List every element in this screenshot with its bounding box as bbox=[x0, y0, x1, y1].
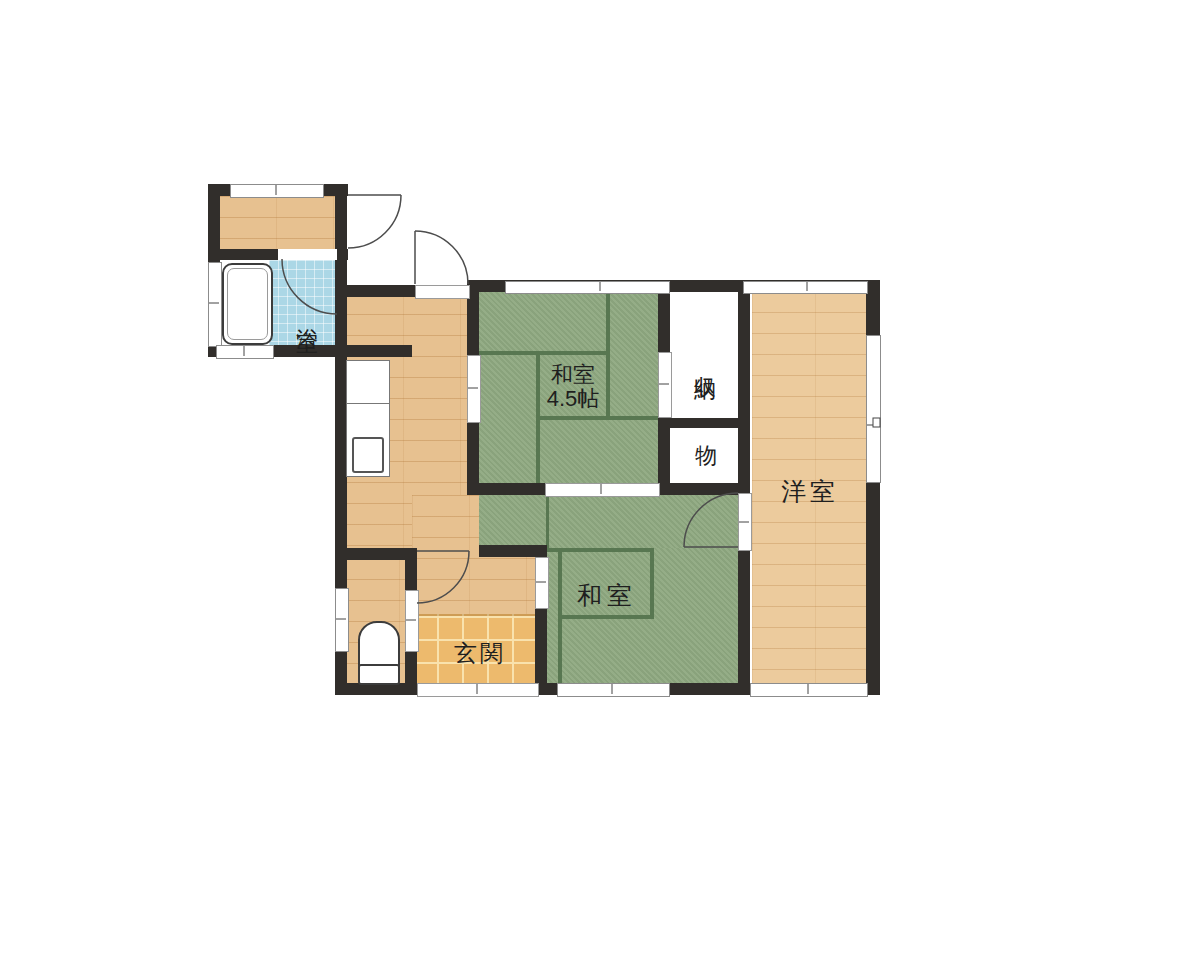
wall bbox=[535, 607, 547, 695]
wall bbox=[738, 549, 750, 695]
japanese-room-45-label-line1: 和室 bbox=[531, 363, 615, 387]
counter-divider bbox=[347, 403, 389, 404]
window bbox=[208, 262, 222, 347]
door-sill bbox=[415, 285, 470, 299]
japanese-room-label: 和室 bbox=[563, 579, 651, 612]
entrance-sliding-door bbox=[417, 683, 539, 697]
window bbox=[743, 281, 868, 294]
utility-room-floor bbox=[219, 196, 337, 249]
bathroom-doorway bbox=[278, 249, 337, 260]
bathtub bbox=[222, 263, 273, 345]
japanese-room-floor bbox=[479, 495, 738, 548]
kitchen-counter bbox=[346, 360, 390, 477]
wall bbox=[479, 545, 547, 557]
wall bbox=[208, 249, 278, 260]
window bbox=[335, 588, 349, 652]
western-room-label: 洋室 bbox=[768, 475, 852, 508]
window bbox=[230, 184, 324, 198]
storage-label: 収納 bbox=[692, 333, 720, 389]
toilet-tank bbox=[358, 664, 400, 685]
japanese-room-45-label: 和室 4.5帖 bbox=[531, 363, 615, 411]
window bbox=[866, 335, 881, 483]
window bbox=[216, 345, 274, 359]
wall bbox=[738, 280, 750, 495]
floor-plan: 浴室 和室 4.5帖 収納 物 洋室 和室 玄関 bbox=[0, 0, 1200, 960]
door-arc-landing bbox=[415, 231, 468, 284]
sliding-door bbox=[658, 352, 672, 418]
wall bbox=[335, 285, 415, 297]
kitchen-sink bbox=[352, 437, 384, 473]
window bbox=[557, 683, 670, 697]
window bbox=[505, 281, 670, 294]
closet-label: 物 bbox=[692, 441, 720, 471]
toilet-doorway bbox=[405, 590, 419, 652]
wall bbox=[658, 418, 750, 428]
tatami-line bbox=[479, 351, 610, 355]
door-sill bbox=[738, 493, 752, 551]
wall bbox=[405, 548, 417, 590]
bathtub-inner bbox=[227, 268, 268, 340]
wall bbox=[658, 483, 750, 495]
bathroom-label: 浴室 bbox=[294, 283, 322, 343]
entrance-label: 玄関 bbox=[438, 638, 522, 669]
sliding-door bbox=[467, 355, 481, 423]
wall bbox=[467, 483, 545, 495]
sliding-door bbox=[545, 483, 660, 497]
tatami-line bbox=[536, 416, 660, 420]
door-arc-utility bbox=[348, 195, 401, 248]
japanese-room-45-label-line2: 4.5帖 bbox=[531, 387, 615, 411]
tatami-line bbox=[546, 495, 549, 548]
sliding-door bbox=[535, 557, 549, 609]
window bbox=[750, 683, 868, 697]
tatami-line bbox=[558, 615, 654, 619]
